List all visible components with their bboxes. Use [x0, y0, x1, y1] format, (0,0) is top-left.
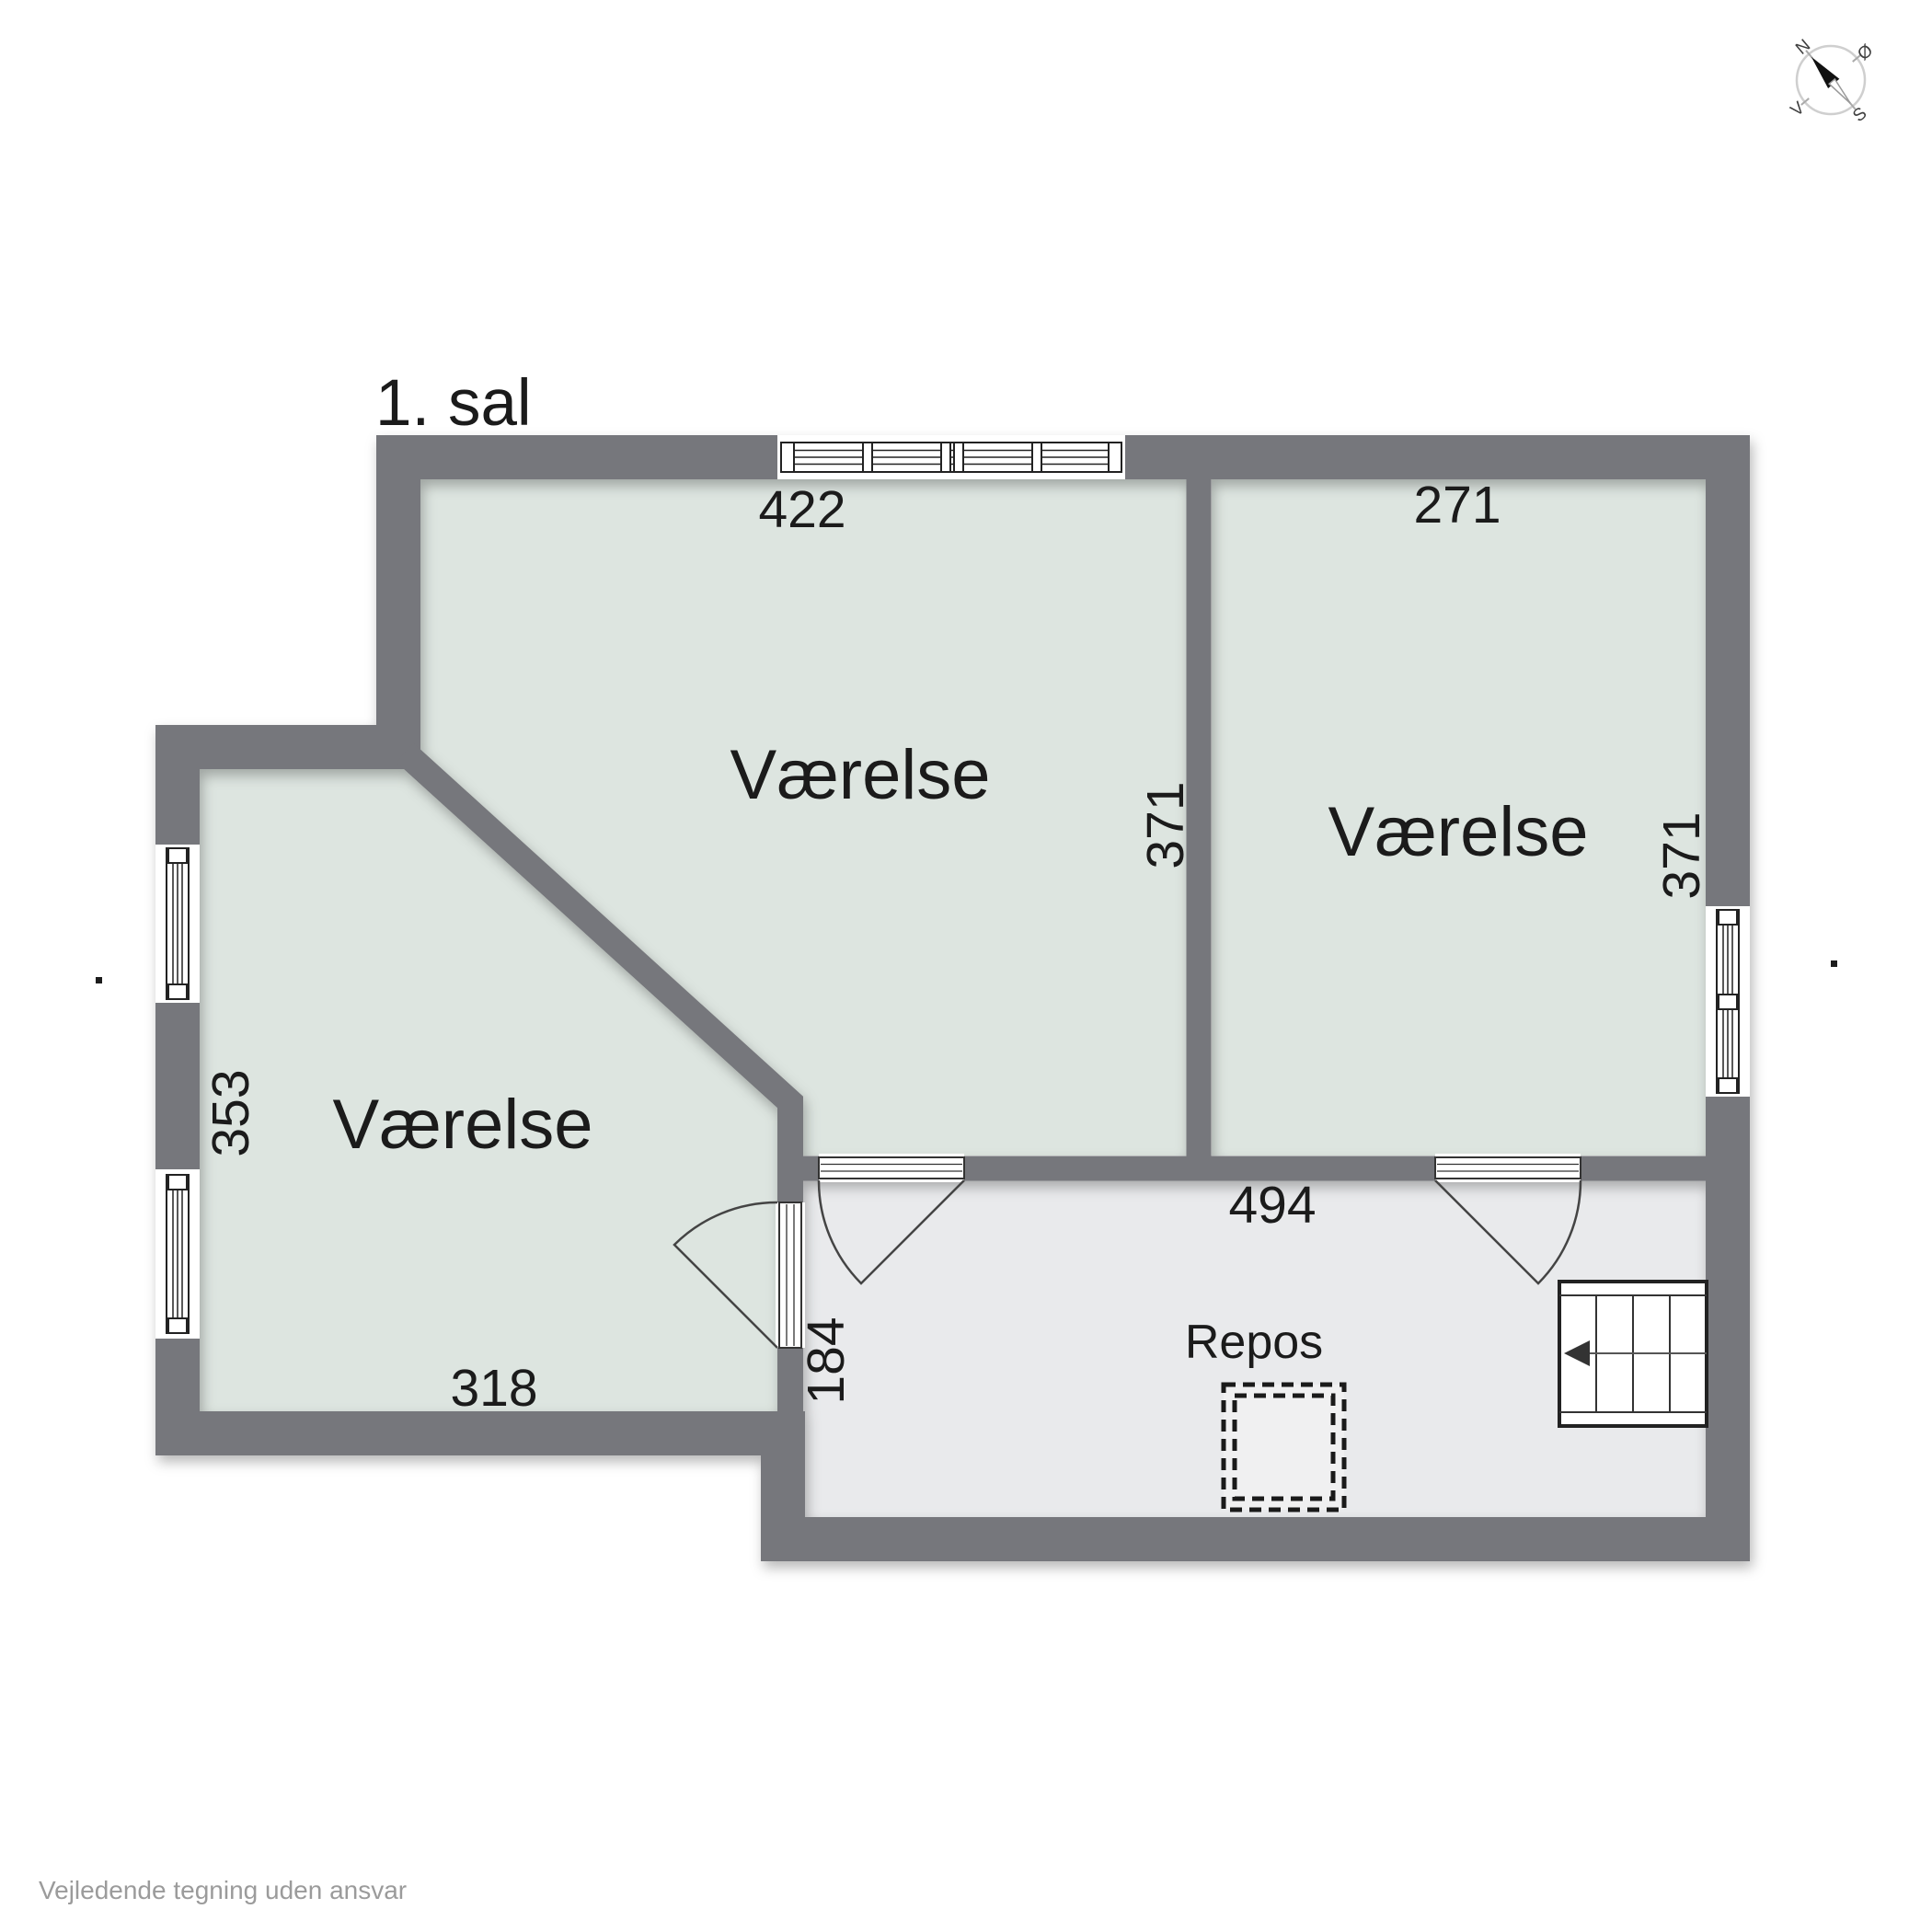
compass-icon: N Ø S V: [1759, 7, 1905, 155]
disclaimer-text: Vejledende tegning uden ansvar: [39, 1876, 407, 1904]
reference-dot-left: [96, 977, 102, 983]
page-title: 1. sal: [375, 367, 532, 440]
landing-label: Repos: [1185, 1316, 1323, 1369]
window-left-upper-icon: [155, 845, 200, 1003]
dim-middle-depth: 371: [1136, 781, 1195, 868]
dim-middle-width: 422: [758, 480, 845, 539]
window-right-icon: [1706, 906, 1750, 1097]
dim-landing-passage: 184: [797, 1317, 856, 1404]
room-left-label: Værelse: [333, 1086, 593, 1164]
dim-left-width: 318: [450, 1359, 537, 1418]
dim-landing-width: 494: [1228, 1176, 1316, 1235]
window-left-lower-icon: [155, 1169, 200, 1339]
chimney-icon: [1224, 1385, 1344, 1510]
reference-dot-right: [1831, 960, 1837, 967]
dim-left-depth: 353: [201, 1069, 260, 1156]
window-top-icon: [777, 435, 1125, 479]
stairs-icon: [1559, 1282, 1707, 1426]
dim-right-depth: 371: [1652, 811, 1711, 899]
room-middle-label: Værelse: [730, 736, 991, 814]
floor-plan: 1. sal Værelse Værelse Værelse Repos 422…: [0, 0, 1932, 1932]
floor-fills: [200, 479, 1706, 1517]
room-right-label: Værelse: [1328, 793, 1589, 871]
dim-right-width: 271: [1413, 476, 1501, 535]
